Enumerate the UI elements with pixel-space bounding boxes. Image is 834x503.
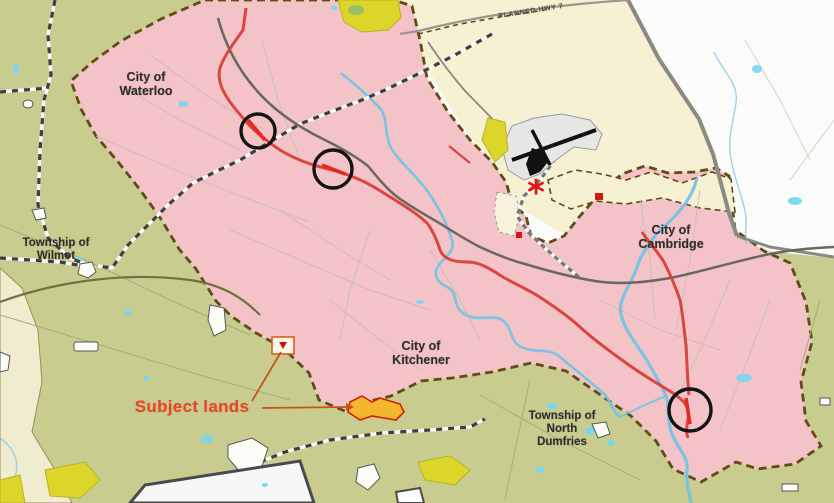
- region-map-svg: *: [0, 0, 834, 503]
- yellow-southwest-b: [0, 475, 25, 503]
- red-square-marker: [595, 193, 603, 200]
- subject-leader-2: [262, 407, 346, 408]
- red-square-marker-small: [516, 232, 522, 238]
- region-map: * PLANNED HWY 7 City of Waterloo Townshi…: [0, 0, 834, 503]
- yellow-north-green: [348, 5, 364, 15]
- star-marker: *: [527, 173, 545, 213]
